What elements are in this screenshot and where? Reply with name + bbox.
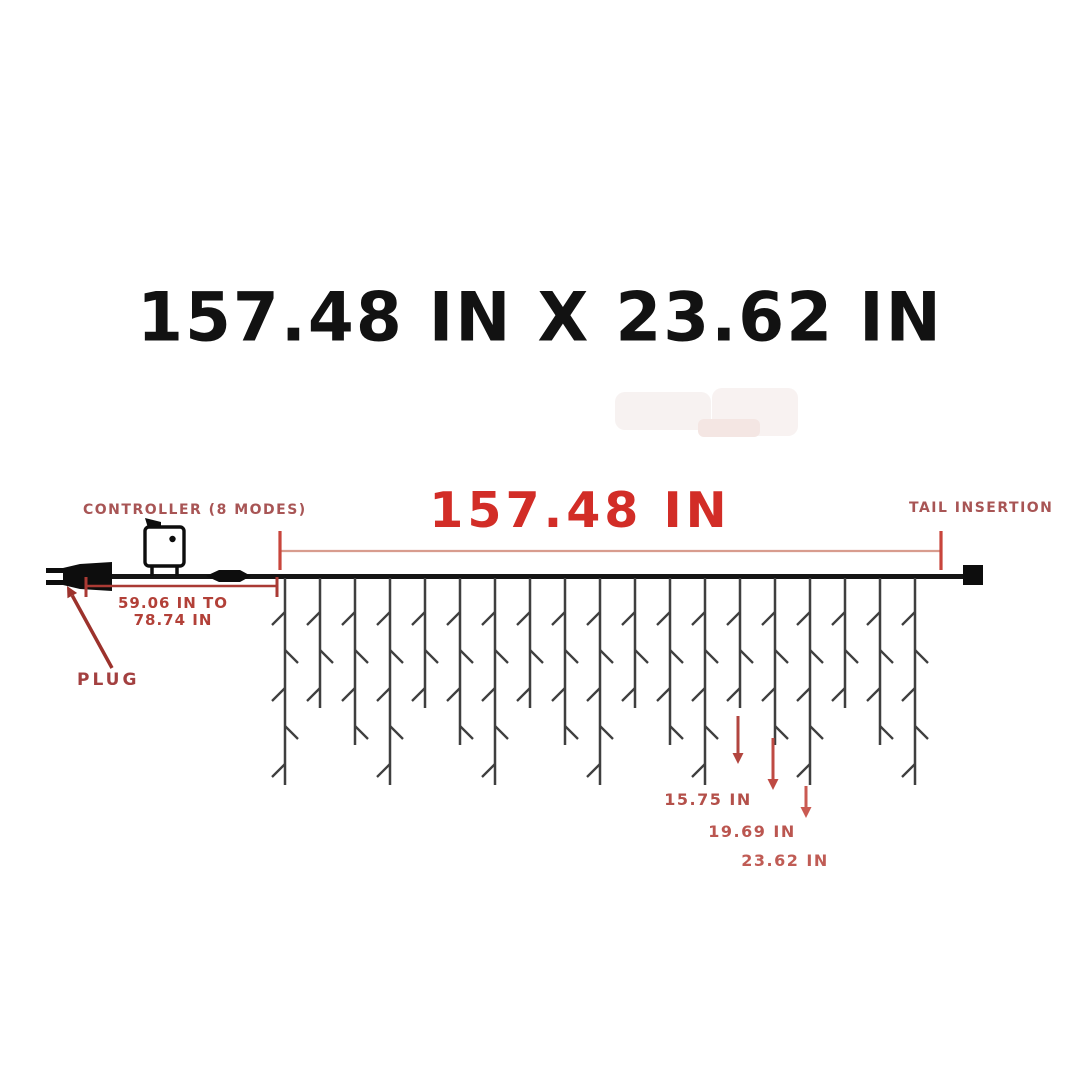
drop-length-label-3: 23.62 IN: [741, 851, 829, 870]
bulb-tick: [390, 650, 403, 663]
bulb-tick: [285, 650, 298, 663]
bulb-tick: [867, 612, 880, 625]
bulb-tick: [797, 688, 810, 701]
bulb-tick: [797, 612, 810, 625]
bulb-tick: [482, 612, 495, 625]
tail-connector: [963, 565, 983, 585]
controller-box: [145, 527, 184, 566]
bulb-tick: [775, 726, 788, 739]
bulb-tick: [517, 612, 530, 625]
bulb-tick: [390, 726, 403, 739]
bulb-tick: [587, 688, 600, 701]
total-width-label: 157.48 IN: [429, 482, 730, 539]
bulb-tick: [565, 650, 578, 663]
bulb-tick: [902, 764, 915, 777]
bulb-tick: [635, 650, 648, 663]
bulb-tick: [810, 726, 823, 739]
bulb-tick: [425, 650, 438, 663]
bulb-tick: [587, 764, 600, 777]
bulb-tick: [377, 612, 390, 625]
bulb-tick: [902, 612, 915, 625]
bulb-tick: [797, 764, 810, 777]
bulb-tick: [832, 612, 845, 625]
plug-label: PLUG: [77, 670, 139, 690]
bulb-tick: [810, 650, 823, 663]
bulb-tick: [307, 612, 320, 625]
lead-length-line1: 59.06 IN TO: [118, 595, 228, 612]
bulb-tick: [412, 612, 425, 625]
bulb-tick: [530, 650, 543, 663]
drop-length-arrow-1-head: [733, 753, 744, 764]
drop-length-label-1: 15.75 IN: [664, 790, 752, 809]
bulb-tick: [377, 764, 390, 777]
bulb-tick: [565, 726, 578, 739]
bulb-tick: [447, 688, 460, 701]
bulb-tick: [880, 726, 893, 739]
bulb-tick: [307, 688, 320, 701]
bulb-tick: [482, 764, 495, 777]
product-dimension-diagram: 157.48 IN X 23.62 IN CONTROLLER (8 MODES…: [0, 0, 1080, 1080]
lead-length-label: 59.06 IN TO 78.74 IN: [118, 595, 228, 629]
bulb-tick: [355, 650, 368, 663]
bulb-tick: [727, 688, 740, 701]
drop-length-arrow-3-head: [801, 807, 812, 818]
bulb-tick: [600, 650, 613, 663]
bulb-tick: [495, 726, 508, 739]
bulb-tick: [915, 726, 928, 739]
bulb-tick: [272, 764, 285, 777]
bulb-tick: [657, 688, 670, 701]
bulb-tick: [320, 650, 333, 663]
inline-connector: [206, 570, 251, 582]
bulb-tick: [845, 650, 858, 663]
bulb-tick: [622, 688, 635, 701]
wiring-diagram-canvas: [0, 0, 1080, 1080]
bulb-tick: [412, 688, 425, 701]
tail-insertion-label: TAIL INSERTION: [909, 500, 1053, 516]
drop-length-arrow-2-head: [768, 779, 779, 790]
plug-pointer-arrow: [72, 596, 112, 668]
bulb-tick: [482, 688, 495, 701]
bulb-tick: [867, 688, 880, 701]
bulb-tick: [727, 612, 740, 625]
bulb-tick: [657, 612, 670, 625]
controller-label: CONTROLLER (8 MODES): [83, 502, 307, 518]
bulb-tick: [670, 726, 683, 739]
bulb-tick: [670, 650, 683, 663]
controller-indicator-dot: [169, 536, 175, 542]
bulb-tick: [272, 612, 285, 625]
bulb-tick: [495, 650, 508, 663]
bulb-tick: [775, 650, 788, 663]
bulb-tick: [762, 688, 775, 701]
bulb-tick: [600, 726, 613, 739]
plug-prong: [46, 580, 64, 585]
bulb-tick: [587, 612, 600, 625]
bulb-tick: [285, 726, 298, 739]
bulb-tick: [692, 764, 705, 777]
bulb-tick: [342, 612, 355, 625]
bulb-tick: [622, 612, 635, 625]
bulb-tick: [762, 612, 775, 625]
bulb-tick: [705, 726, 718, 739]
bulb-tick: [740, 650, 753, 663]
lead-length-line2: 78.74 IN: [118, 612, 228, 629]
bulb-tick: [517, 688, 530, 701]
drop-length-label-2: 19.69 IN: [708, 822, 796, 841]
bulb-tick: [460, 726, 473, 739]
bulb-tick: [915, 650, 928, 663]
bulb-tick: [342, 688, 355, 701]
bulb-tick: [377, 688, 390, 701]
bulb-tick: [880, 650, 893, 663]
plug-prong: [46, 568, 64, 573]
bulb-tick: [460, 650, 473, 663]
bulb-tick: [832, 688, 845, 701]
bulb-tick: [272, 688, 285, 701]
bulb-tick: [692, 612, 705, 625]
bulb-tick: [447, 612, 460, 625]
bulb-tick: [692, 688, 705, 701]
bulb-tick: [902, 688, 915, 701]
bulb-tick: [552, 612, 565, 625]
bulb-tick: [705, 650, 718, 663]
bulb-tick: [355, 726, 368, 739]
bulb-tick: [552, 688, 565, 701]
